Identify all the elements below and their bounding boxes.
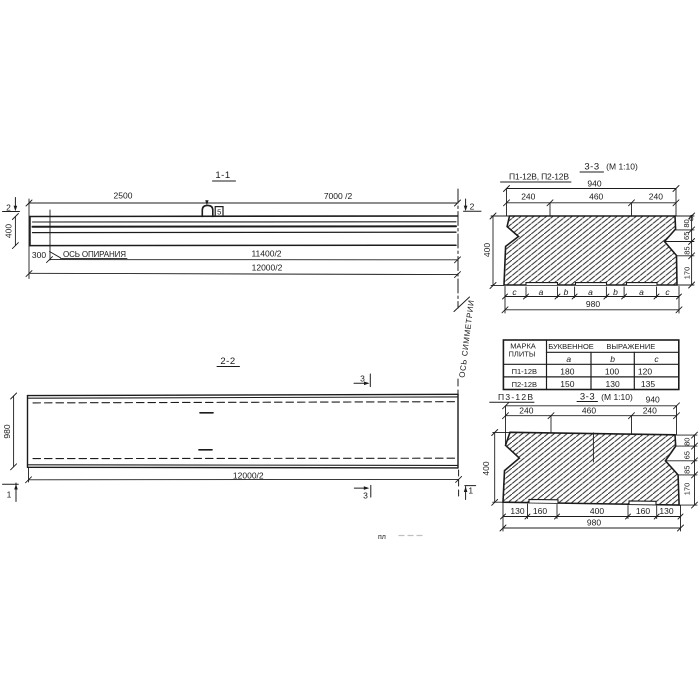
svg-text:12000/2: 12000/2 — [252, 262, 283, 272]
svg-text:7000 /2: 7000 /2 — [324, 191, 353, 201]
svg-text:3: 3 — [360, 373, 365, 383]
svg-text:a: a — [539, 287, 544, 297]
svg-text:80: 80 — [682, 438, 691, 446]
svg-text:120: 120 — [638, 366, 652, 376]
svg-text:(М 1:10): (М 1:10) — [601, 392, 633, 402]
svg-text:3: 3 — [363, 490, 368, 500]
svg-text:160: 160 — [533, 506, 547, 516]
svg-text:980: 980 — [586, 299, 600, 309]
svg-text:400: 400 — [482, 243, 492, 257]
svg-text:a: a — [588, 287, 593, 297]
svg-text:460: 460 — [589, 191, 603, 201]
svg-text:a: a — [566, 354, 571, 364]
svg-text:БУКВЕННОЕ: БУКВЕННОЕ — [548, 342, 594, 351]
svg-text:3-3: 3-3 — [584, 162, 599, 173]
svg-text:b: b — [564, 287, 569, 297]
svg-text:400: 400 — [4, 224, 14, 238]
svg-text:980: 980 — [2, 424, 12, 438]
svg-text:1: 1 — [468, 485, 473, 495]
svg-text:ОСЬ ОПИРАНИЯ: ОСЬ ОПИРАНИЯ — [63, 250, 126, 259]
svg-text:135: 135 — [641, 379, 655, 389]
svg-text:65: 65 — [682, 451, 691, 459]
svg-text:300: 300 — [32, 250, 46, 260]
svg-text:11400/2: 11400/2 — [251, 248, 281, 258]
svg-text:940: 940 — [587, 179, 601, 189]
svg-text:85: 85 — [683, 246, 692, 254]
svg-text:2-2: 2-2 — [220, 356, 235, 367]
svg-text:130: 130 — [510, 506, 524, 516]
svg-text:б: б — [689, 214, 694, 223]
svg-text:160: 160 — [636, 506, 650, 516]
svg-text:170: 170 — [683, 483, 692, 496]
svg-text:b: b — [613, 287, 618, 297]
svg-text:170: 170 — [683, 267, 692, 280]
svg-text:2: 2 — [6, 203, 11, 213]
svg-text:П1-12В: П1-12В — [512, 367, 537, 376]
svg-text:2: 2 — [470, 202, 475, 212]
svg-text:3-3: 3-3 — [580, 392, 595, 403]
svg-text:240: 240 — [643, 406, 657, 416]
svg-text:180: 180 — [560, 366, 574, 376]
svg-text:1: 1 — [7, 489, 12, 499]
svg-text:П2-12В: П2-12В — [512, 380, 537, 389]
svg-text:ВЫРАЖЕНИЕ: ВЫРАЖЕНИЕ — [606, 342, 655, 351]
svg-text:12000/2: 12000/2 — [233, 471, 264, 481]
svg-text:940: 940 — [646, 394, 660, 404]
svg-text:П1-12В, П2-12В: П1-12В, П2-12В — [509, 172, 569, 182]
svg-text:980: 980 — [587, 518, 601, 528]
svg-text:1-1: 1-1 — [215, 170, 230, 181]
svg-text:400: 400 — [481, 461, 491, 475]
svg-text:400: 400 — [590, 506, 604, 516]
svg-text:85: 85 — [683, 466, 692, 474]
svg-text:ПЛИТЫ: ПЛИТЫ — [509, 349, 536, 358]
svg-text:2500: 2500 — [114, 191, 133, 201]
svg-text:b: b — [610, 354, 615, 364]
svg-text:130: 130 — [659, 506, 673, 516]
svg-text:5: 5 — [217, 208, 221, 217]
svg-text:240: 240 — [521, 191, 535, 201]
svg-text:130: 130 — [606, 379, 620, 389]
svg-text:240: 240 — [649, 191, 663, 201]
svg-text:240: 240 — [519, 406, 533, 416]
svg-text:(М 1:10): (М 1:10) — [606, 162, 638, 172]
svg-text:100: 100 — [605, 366, 619, 376]
svg-text:460: 460 — [582, 406, 596, 416]
svg-text:П3-12В: П3-12В — [498, 392, 533, 402]
svg-text:a: a — [639, 287, 644, 297]
svg-text:65: 65 — [682, 232, 691, 240]
svg-text:150: 150 — [560, 379, 574, 389]
svg-text:пл: пл — [378, 534, 386, 541]
